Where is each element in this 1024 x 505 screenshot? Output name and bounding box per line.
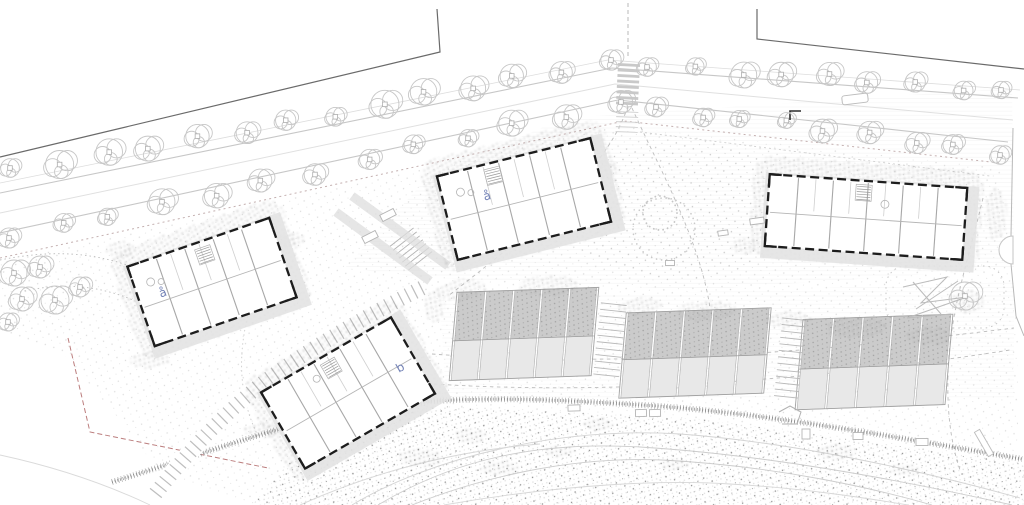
- rowhouse-unit-terrace: [735, 355, 765, 394]
- shrub-stipple: [583, 417, 613, 431]
- shrub-stipple: [454, 429, 486, 443]
- rowhouse-unit-terrace: [707, 356, 737, 395]
- shrub-stipple: [816, 444, 856, 460]
- rowhouse-unit-terrace: [451, 340, 480, 381]
- rowhouse-unit-terrace: [649, 358, 679, 397]
- bench: [568, 405, 580, 411]
- bench: [718, 230, 729, 236]
- rowhouse-unit-terrace: [886, 365, 917, 407]
- shrub-stipple: [480, 460, 520, 476]
- shrub-stipple: [398, 449, 442, 467]
- rowhouse-unit-terrace: [535, 337, 564, 378]
- rowhouse-unit-terrace: [797, 368, 828, 410]
- building-right: [748, 155, 985, 273]
- shrub-stipple: [545, 446, 575, 458]
- rowhouse-unit-terrace: [915, 364, 946, 406]
- bench: [649, 409, 660, 416]
- bench: [853, 433, 863, 440]
- shrub-stipple: [985, 188, 1007, 240]
- bench: [802, 429, 810, 439]
- rowhouse-unit-terrace: [856, 366, 887, 408]
- shrub-stipple: [662, 459, 690, 471]
- shrub-stipple: [889, 464, 921, 476]
- site-plan: å å b: [0, 0, 1024, 505]
- rowhouse-unit-terrace: [479, 339, 508, 380]
- bench: [635, 409, 646, 416]
- rowhouse-unit-terrace: [563, 336, 592, 377]
- rowhouse-unit-terrace: [507, 338, 536, 379]
- shrub-stipple: [423, 290, 445, 322]
- rowhouse-block: [446, 287, 602, 380]
- rowhouse-block: [616, 308, 774, 398]
- rowhouse-unit-terrace: [621, 359, 651, 398]
- bench: [916, 439, 928, 446]
- bench: [666, 261, 675, 266]
- rowhouse-unit-terrace: [827, 367, 858, 409]
- rowhouse-unit-terrace: [678, 357, 708, 396]
